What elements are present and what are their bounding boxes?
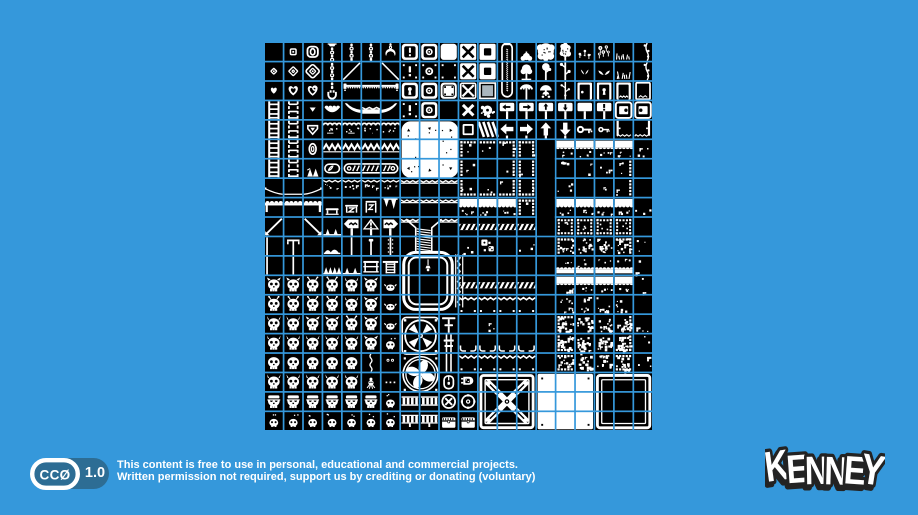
- svg-text:CCØ: CCØ: [40, 467, 71, 482]
